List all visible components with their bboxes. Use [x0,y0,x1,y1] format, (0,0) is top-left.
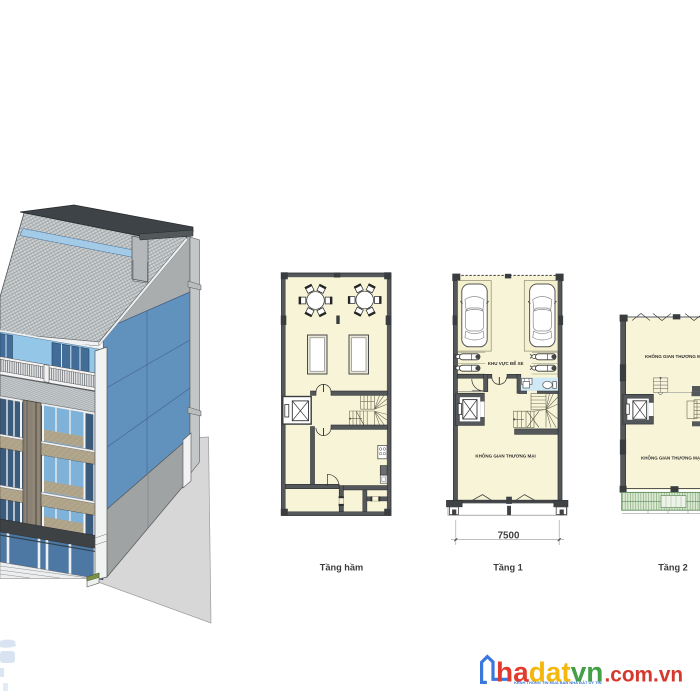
svg-text:Tầng 1: Tầng 1 [493,563,523,573]
svg-text:KHU VỰC ĐỂ XE: KHU VỰC ĐỂ XE [488,360,524,366]
svg-text:KHÔNG GIAN THƯƠNG MẠI: KHÔNG GIAN THƯƠNG MẠI [645,352,700,359]
svg-text:7500: 7500 [498,531,520,542]
svg-text:Tầng 2: Tầng 2 [658,563,688,573]
svg-text:KHÔNG GIAN THƯƠNG MẠI: KHÔNG GIAN THƯƠNG MẠI [475,451,535,458]
svg-text:KHÔNG GIAN THƯƠNG MẠI: KHÔNG GIAN THƯƠNG MẠI [641,454,700,461]
svg-text:Tầng hầm: Tầng hầm [320,563,363,573]
svg-text:.com.vn: .com.vn [605,663,684,686]
svg-text:KÊNH THÔNG TIN MUA BÁN NHÀ ĐẤT: KÊNH THÔNG TIN MUA BÁN NHÀ ĐẤT UY TÍN [514,680,602,685]
